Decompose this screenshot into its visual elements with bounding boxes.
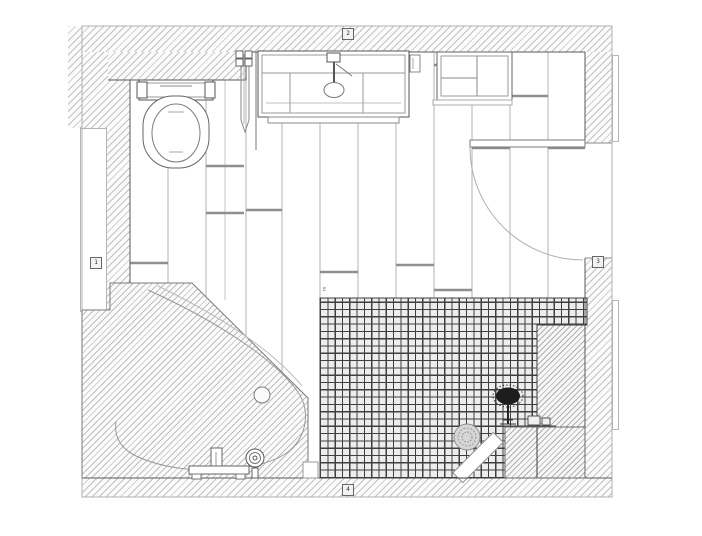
floor-plan-canvas: 1 2 3 4 E xyxy=(0,0,702,536)
elevation-marker-1: 1 xyxy=(90,257,102,269)
plant-or-drain xyxy=(493,385,523,424)
mosaic-outline xyxy=(320,298,587,478)
elevation-marker-3: 3 xyxy=(592,256,604,268)
shower-bench-outline xyxy=(505,427,585,478)
stone-drain xyxy=(454,424,480,450)
bathtub-platform-outline xyxy=(82,283,308,478)
tub-faucet-hole xyxy=(254,387,270,403)
shower-corner-label: E xyxy=(323,288,326,293)
washbasin-vanity xyxy=(258,51,420,123)
towel-rail xyxy=(236,51,256,150)
toilet xyxy=(137,80,215,168)
elevation-marker-2: 2 xyxy=(342,28,354,40)
platform-step xyxy=(303,462,318,478)
tub-faucet xyxy=(189,448,249,479)
window xyxy=(433,52,512,105)
fixture-linework xyxy=(0,0,702,536)
bench-items xyxy=(522,416,556,426)
door-swing xyxy=(470,140,585,260)
elevation-marker-4: 4 xyxy=(342,484,354,496)
wall-accessory xyxy=(410,55,420,72)
